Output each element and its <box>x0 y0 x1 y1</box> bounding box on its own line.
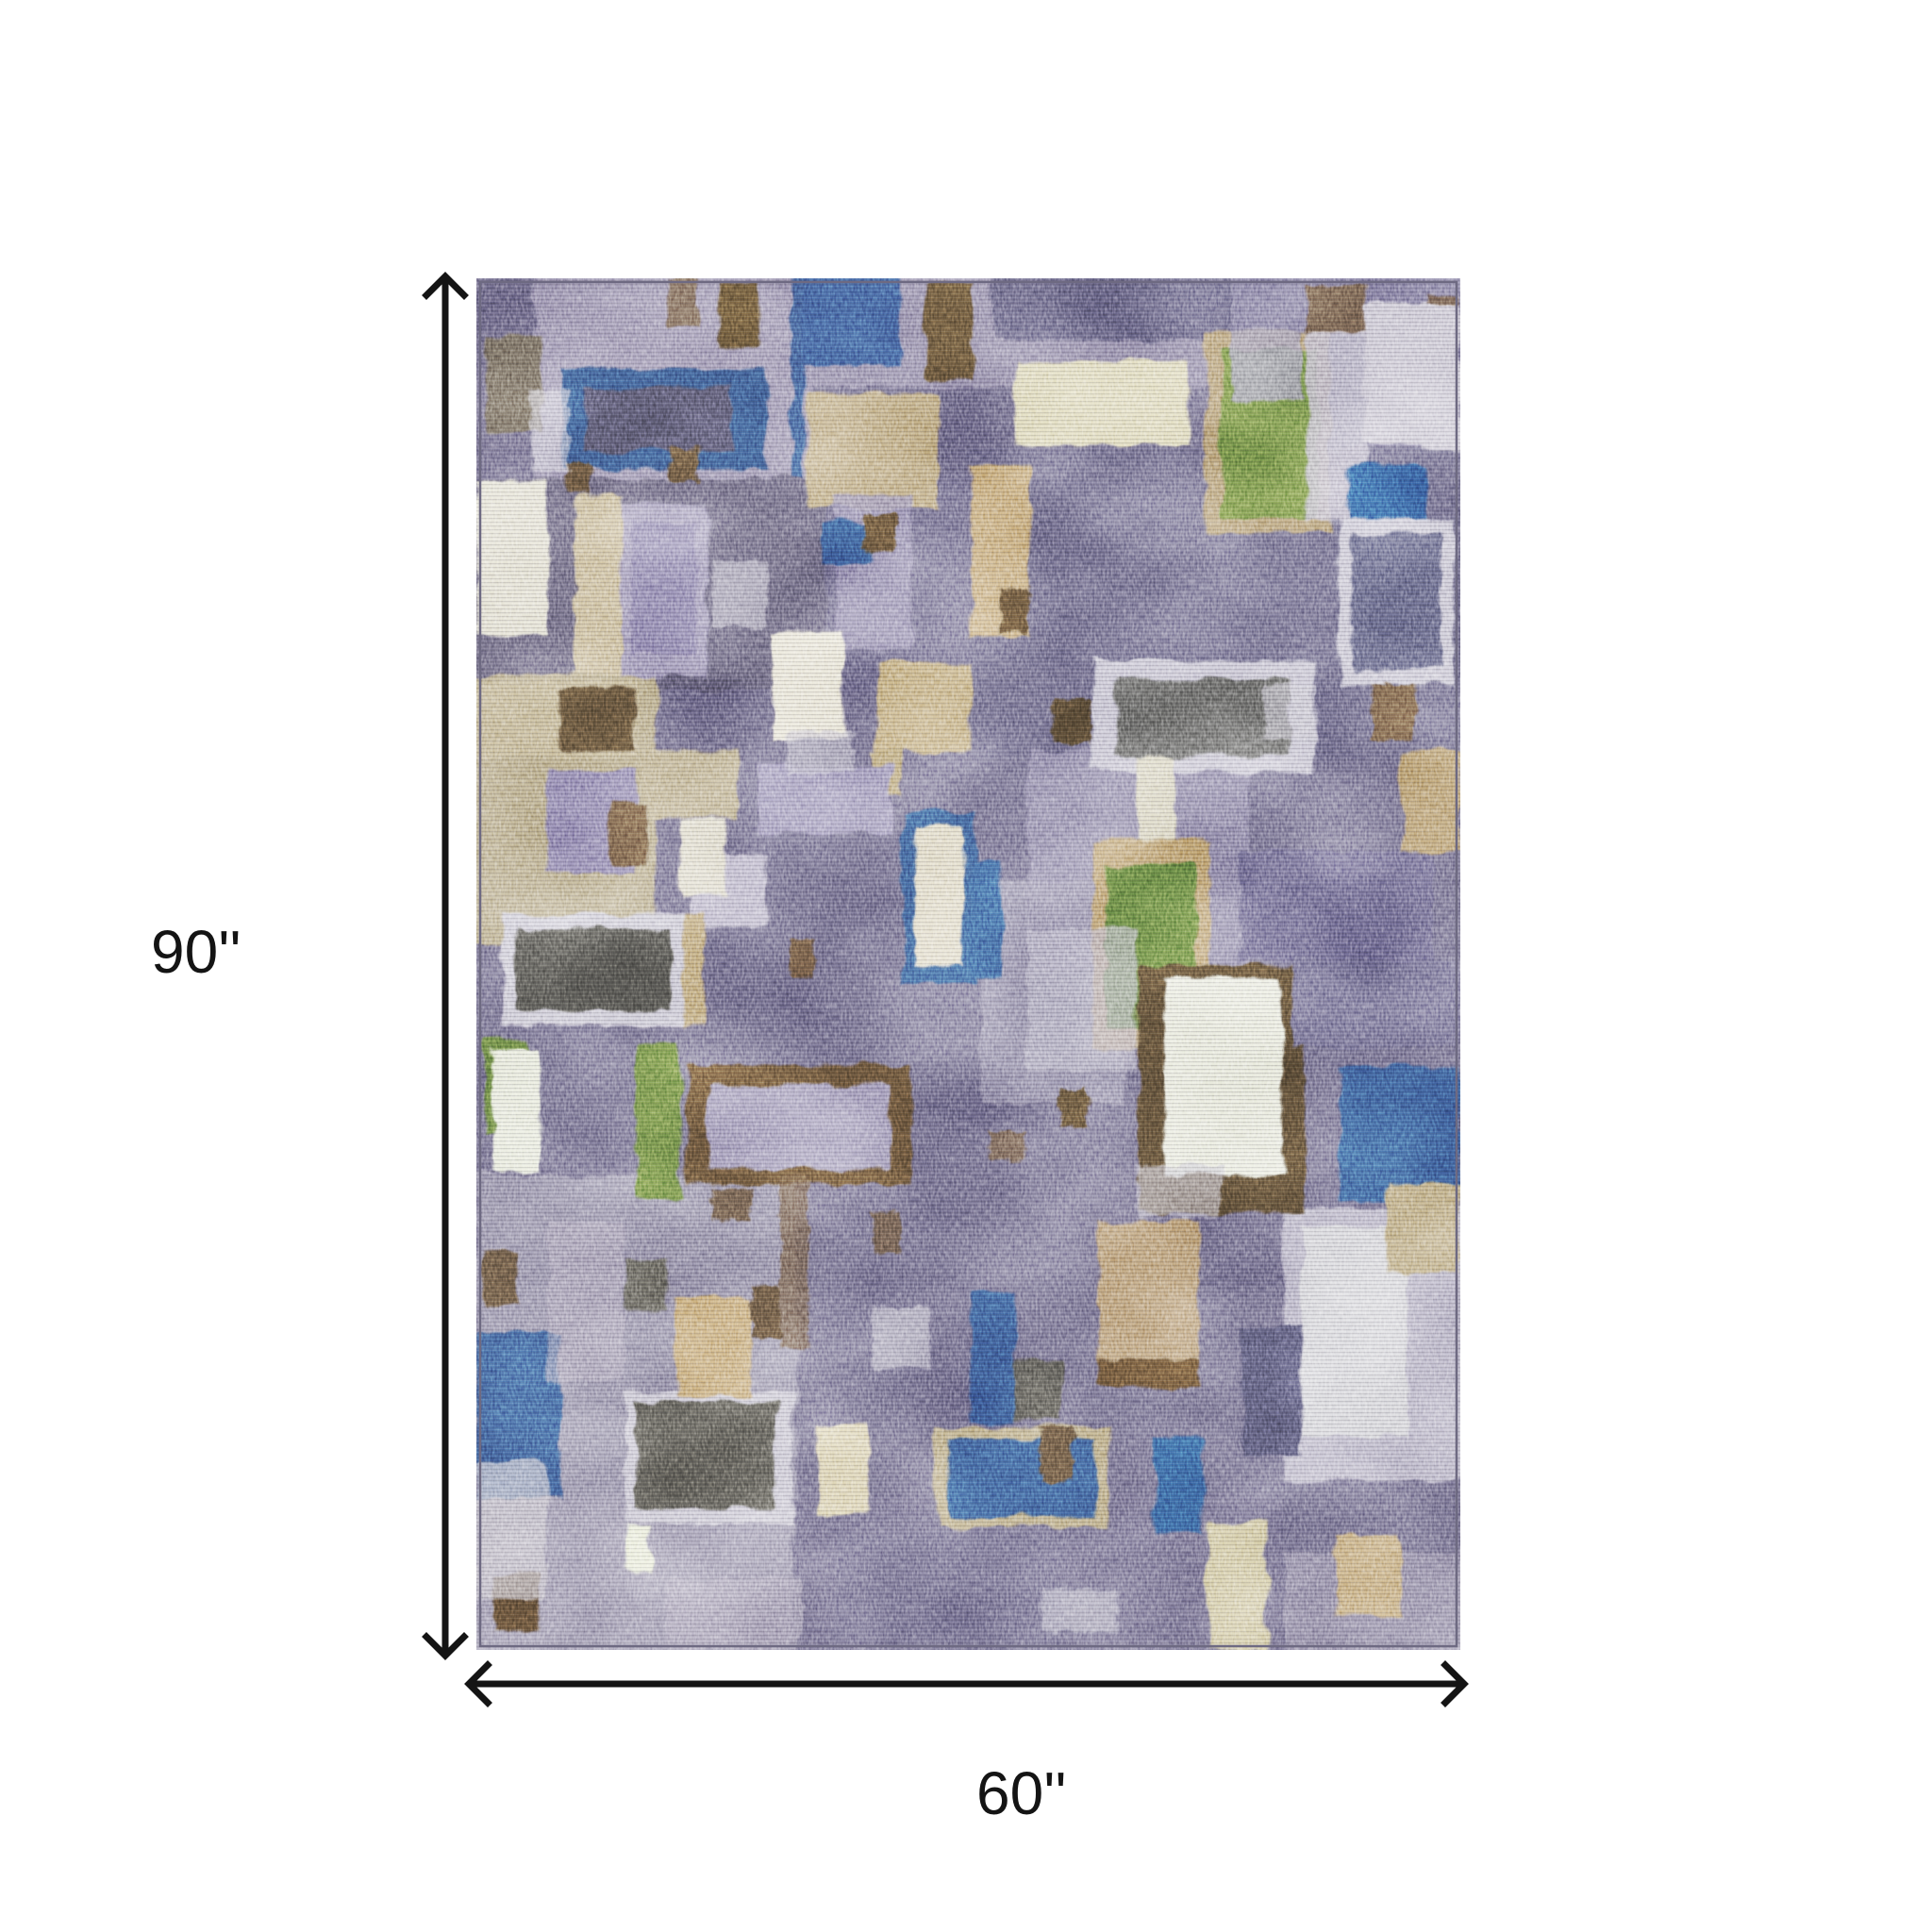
svg-text:60'': 60'' <box>976 1759 1067 1827</box>
svg-text:90'': 90'' <box>151 918 241 986</box>
